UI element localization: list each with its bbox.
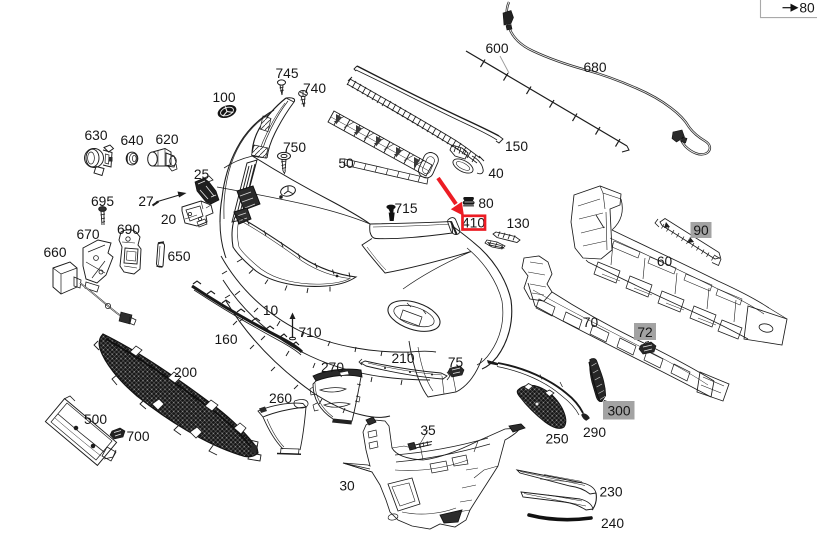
svg-text:745: 745 (275, 66, 298, 81)
svg-text:660: 660 (43, 245, 66, 260)
svg-text:80: 80 (799, 1, 815, 16)
svg-text:260: 260 (269, 391, 292, 406)
svg-text:690: 690 (117, 222, 140, 237)
svg-text:750: 750 (283, 140, 306, 155)
svg-text:650: 650 (167, 249, 190, 264)
svg-text:715: 715 (394, 201, 417, 216)
svg-text:10: 10 (263, 303, 279, 318)
svg-text:230: 230 (599, 485, 622, 500)
svg-text:500: 500 (84, 412, 107, 427)
svg-text:72: 72 (637, 325, 652, 340)
svg-text:35: 35 (420, 423, 436, 438)
svg-text:20: 20 (161, 212, 177, 227)
svg-text:640: 640 (120, 133, 143, 148)
svg-text:695: 695 (91, 194, 114, 209)
svg-text:130: 130 (506, 216, 529, 231)
svg-text:740: 740 (303, 81, 326, 96)
svg-text:710: 710 (298, 325, 321, 340)
svg-text:100: 100 (212, 90, 235, 105)
svg-text:90: 90 (693, 223, 709, 238)
svg-text:670: 670 (76, 227, 99, 242)
svg-text:210: 210 (391, 351, 414, 366)
svg-text:27: 27 (138, 194, 153, 209)
svg-text:150: 150 (505, 139, 528, 154)
svg-text:75: 75 (448, 355, 464, 370)
svg-text:50: 50 (338, 156, 354, 171)
svg-text:240: 240 (601, 516, 624, 531)
svg-text:620: 620 (155, 132, 178, 147)
svg-text:70: 70 (583, 315, 599, 330)
svg-text:160: 160 (214, 332, 237, 347)
svg-text:80: 80 (478, 196, 494, 211)
svg-text:680: 680 (583, 60, 606, 75)
svg-text:200: 200 (174, 365, 197, 380)
svg-text:25: 25 (194, 167, 210, 182)
svg-text:700: 700 (126, 429, 149, 444)
svg-text:290: 290 (583, 425, 606, 440)
svg-text:270: 270 (321, 360, 344, 375)
svg-text:250: 250 (545, 432, 568, 447)
svg-text:60: 60 (657, 254, 673, 269)
svg-text:30: 30 (339, 479, 355, 494)
svg-text:300: 300 (607, 404, 630, 419)
svg-text:600: 600 (485, 41, 508, 56)
svg-text:630: 630 (84, 128, 107, 143)
svg-text:40: 40 (488, 166, 504, 181)
